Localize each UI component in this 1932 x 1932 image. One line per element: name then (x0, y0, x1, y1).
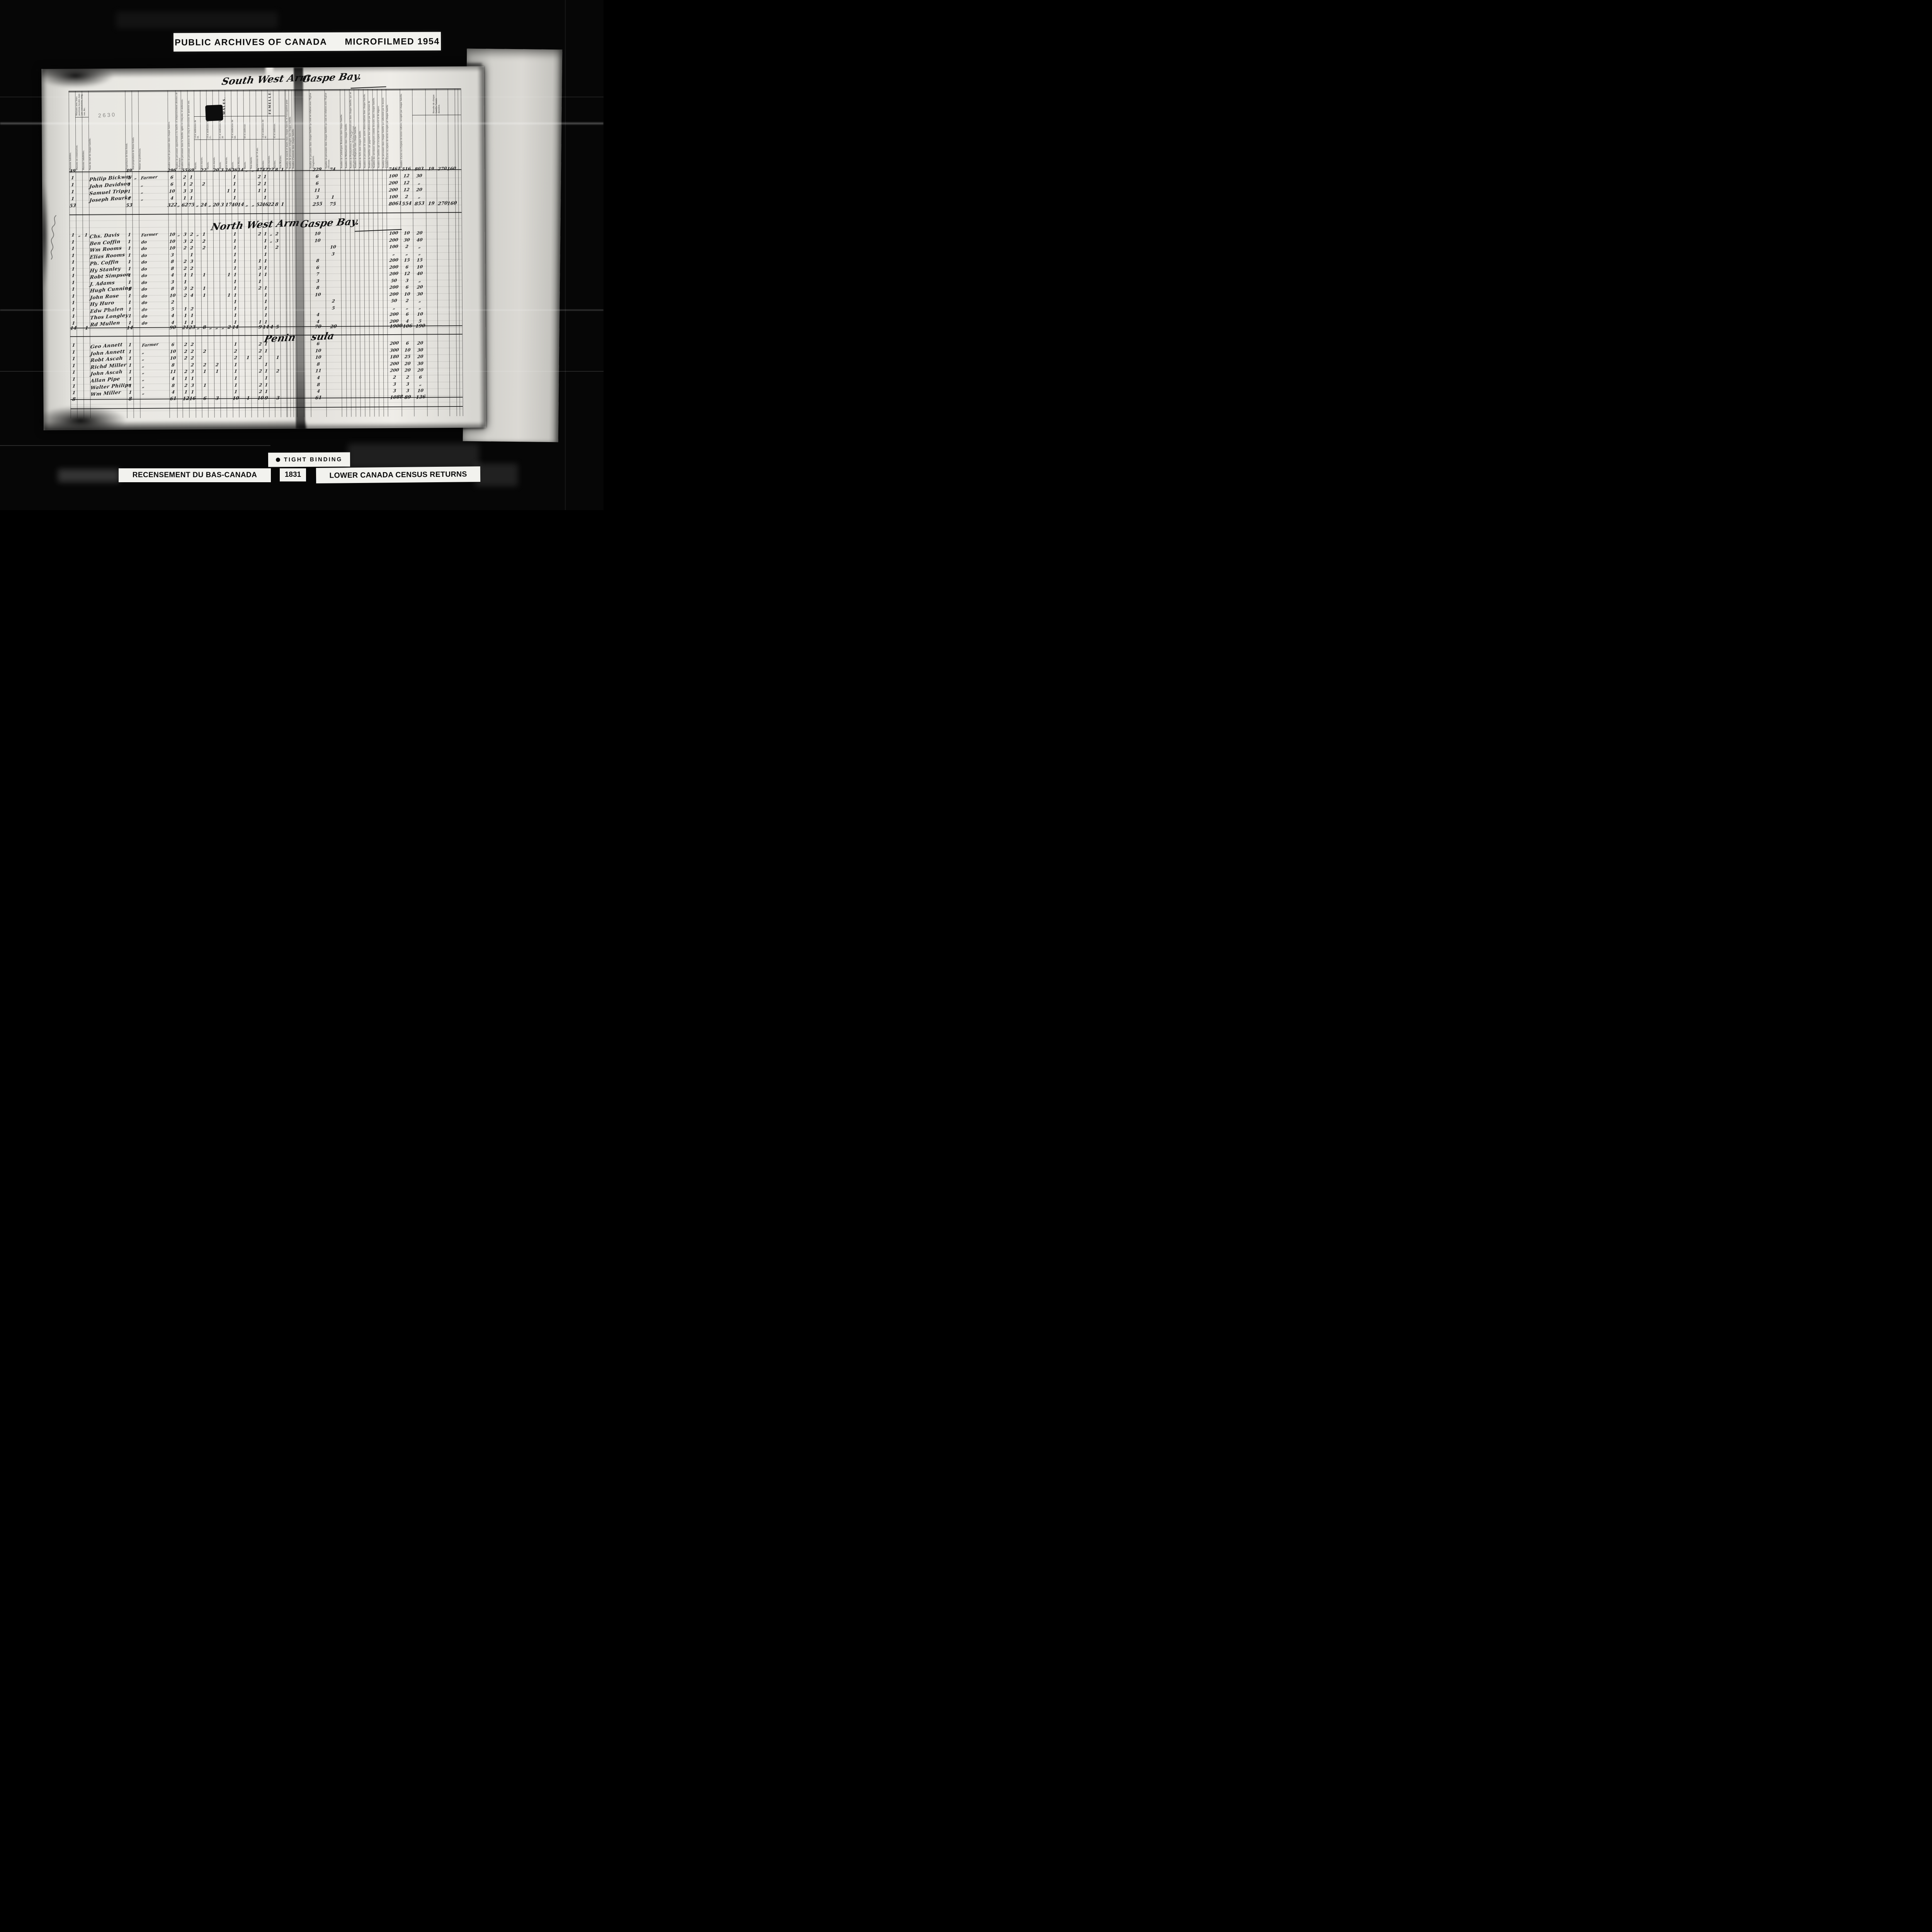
group-header: FEMELLES. (267, 92, 273, 114)
microfilm-frame: PUBLIC ARCHIVES OF CANADA MICROFILMED 19… (0, 0, 604, 510)
cell-bled: „ (414, 194, 424, 200)
marital-status-header: Mariés. (231, 140, 237, 169)
cell-hab: 1 (68, 246, 78, 252)
cell-f1445m: 1 (261, 389, 271, 395)
page-edge-shadow (299, 422, 484, 430)
cell-prop: 1 (125, 299, 135, 305)
cell-angl: 10 (313, 238, 323, 243)
cell-bled: 6 (415, 374, 425, 380)
cell-a05: 1 (180, 279, 190, 285)
cell-cult: 30 (402, 237, 412, 243)
cell-f1445m: 1 (261, 375, 271, 381)
cell-hab: 1 (69, 383, 79, 389)
cell-total: 90 (168, 325, 178, 331)
cell-ecosse: 10 (328, 244, 338, 250)
cell-m3060m: 2 (231, 355, 241, 361)
cell-f1445m: 1 (260, 245, 270, 250)
cell-a514: 3 (187, 259, 197, 264)
cell-a514: 1 (186, 195, 196, 201)
cell-bled: „ (415, 381, 425, 387)
column-header: Nombre de sourds et muets dans chaque fa… (286, 92, 289, 169)
cell-total: 4 (168, 376, 178, 382)
cell-m3060m: 1 (231, 389, 241, 395)
cell-angl: 8 (313, 285, 323, 291)
cell-bled: 10 (415, 264, 425, 270)
marital-status-header: Non-mariés. (225, 140, 231, 169)
cell-m1418n: 1 (200, 383, 210, 388)
cell-f1445m: 1 (261, 362, 271, 367)
cell-acres: „ (389, 251, 399, 257)
cell-hab: 14 (68, 325, 78, 331)
cell-angl: 4 (313, 375, 323, 381)
cell-ecosse: 1 (328, 194, 338, 200)
age-band-header: 60 et audessus (244, 117, 255, 138)
age-band-header: 45 et audessus. (274, 117, 284, 138)
cell-orge: 160 (447, 166, 457, 172)
cell-m3060m: 1 (230, 286, 240, 291)
cell-angl: 10 (313, 354, 323, 360)
cell-m3060m: 1 (231, 342, 241, 347)
cell-bled: 190 (415, 323, 425, 329)
marital-status-header: Non-Mariés. (238, 140, 243, 169)
cell-m3060m: 2 (231, 348, 241, 354)
cell-acres: 180 (389, 354, 400, 360)
cell-m3060m: 14 (230, 324, 240, 330)
cell-f1445m: 1 (260, 258, 270, 264)
column-header: Nombre de Juifs dans chaque famille. (359, 91, 363, 168)
cell-m3060m: 1 (231, 376, 241, 381)
column-header: Propriétaire de bien-fonds. (126, 92, 132, 170)
marital-status-header: Mariées. (262, 140, 267, 169)
cell-total: 10 (168, 355, 178, 361)
census-document: 2630 Maisons habitées.Nom du chef de cha… (41, 66, 486, 430)
tight-binding-label: TIGHT BINDING (268, 452, 350, 467)
cell-prop: 1 (125, 362, 135, 368)
bullet-icon (276, 457, 280, 462)
film-scratch (565, 0, 566, 510)
column-header: Nombre de personnes audessus de cinq et … (188, 92, 194, 169)
cell-total: 6 (167, 182, 177, 187)
cell-angl: 3 (312, 194, 322, 200)
section-heading-left: South West Arm (221, 71, 311, 87)
film-smudge (116, 12, 278, 29)
cell-angl: 6 (313, 265, 323, 270)
cell-f14: 2 (255, 355, 265, 361)
cell-m3060m: 1 (230, 259, 240, 264)
cell-cult: 89 (403, 394, 413, 400)
section-heading-right: Gaspe Bay. (299, 216, 361, 230)
cell-m60m: 1 (243, 355, 253, 361)
cell-f45m: 2 (272, 245, 282, 250)
cell-ecosse: 5 (328, 305, 338, 311)
cell-angl: 4 (313, 312, 323, 318)
cell-bled: 10 (415, 388, 425, 394)
cell-cult: 20 (403, 367, 413, 373)
cell-a514: 2 (187, 245, 197, 251)
page-number-stamp: 2630 (98, 111, 116, 119)
cell-hab: 1 (69, 376, 79, 382)
column-header: Maisons inhabitées. (82, 118, 88, 170)
cell-cult: 10 (403, 347, 413, 353)
column-header: Nombre d'insensés dans chaque famille. (292, 92, 295, 169)
cell-acres: 200 (388, 187, 398, 193)
cell-f1445m: 1 (260, 285, 270, 291)
cell-total: 11 (168, 369, 178, 375)
cell-f1445m: 1 (260, 195, 270, 201)
column-header: Nombre de Presbytériens et Congrégationa… (350, 91, 354, 168)
film-smudge (348, 444, 479, 469)
cell-m1821n: 2 (212, 362, 222, 368)
cell-hab: 1 (69, 363, 79, 369)
cell-m3060m: 1 (230, 174, 240, 180)
cell-hab: 1 (68, 293, 78, 299)
cell-m3060m: 1 (230, 279, 240, 284)
cell-angl: 10 (313, 231, 323, 236)
cell-prop: 1 (124, 279, 134, 285)
cell-cult: 2 (401, 194, 412, 200)
cell-m1418n: 1 (199, 272, 209, 278)
cell-m1418n: 2 (200, 349, 210, 354)
cell-m1418n: 1 (200, 369, 210, 374)
cell-total: 10 (167, 238, 177, 244)
cell-a514: 2 (187, 349, 197, 354)
cell-a514: 1 (186, 174, 196, 180)
row-ruled-line (71, 409, 463, 412)
marital-status-header: Non-mariés. (201, 140, 206, 169)
cell-f45m: 3 (272, 238, 282, 243)
column-header: Nombre de Methodistes dans chaque famill… (345, 91, 349, 168)
cell-hab: 1 (68, 273, 78, 279)
banner-text-left: PUBLIC ARCHIVES OF CANADA (175, 36, 327, 48)
cell-f1445m: 1 (260, 188, 270, 194)
cell-m3060m: 1 (230, 231, 240, 237)
cell-avoine: 270 (437, 200, 447, 206)
cell-a514: 2 (187, 362, 197, 368)
cell-ecosse: 3 (328, 251, 338, 257)
cell-prop: 1 (124, 182, 134, 187)
cell-prop: 1 (124, 189, 134, 194)
cell-prop: 1 (124, 239, 134, 245)
cell-angl: 10 (313, 292, 323, 298)
cell-acres: 8061 (388, 201, 398, 207)
cell-angl: 8 (313, 382, 323, 388)
cell-ecosse: 75 (328, 201, 338, 207)
cell-acres: 200 (389, 361, 400, 367)
age-band-header: 30 et audessous de 60. (231, 117, 243, 138)
cell-acres: 100 (388, 173, 398, 179)
cell-acres: 200 (389, 237, 399, 243)
column-header: Nombre de familles qui gagnent leur subs… (368, 91, 372, 168)
cell-prop: 1 (124, 245, 134, 251)
cell-f1445m: 1 (261, 306, 271, 311)
row-ruled-line (70, 402, 463, 405)
heading-flourish (350, 86, 386, 88)
cell-m1418n: 22 (199, 167, 209, 173)
cell-hab: 1 (68, 266, 78, 272)
cell-a514: 2 (187, 265, 197, 271)
page-edge-shadow (273, 63, 482, 73)
cell-total: 6 (167, 175, 177, 180)
cell-total: 4 (168, 389, 179, 395)
column-header: Nombre d'acres ou arpens de terres occup… (386, 91, 400, 168)
marital-status-header: Mariés. (207, 140, 212, 169)
cell-prop: 49 (124, 168, 134, 173)
cell-acres: 200 (389, 367, 400, 373)
cell-prop: 1 (124, 293, 134, 299)
cell-a514: 1 (187, 252, 197, 258)
cell-f1445m: 1 (260, 174, 270, 180)
column-header: Nombre de personnes dans la famille, agé… (181, 92, 187, 169)
margin-annotation-handwriting (44, 214, 63, 260)
cell-total: 296 (167, 168, 177, 173)
cell-acres: 200 (389, 264, 399, 270)
cell-acres: 200 (389, 291, 399, 297)
cell-total: 6 (168, 342, 178, 348)
cell-m1418n: 2 (199, 238, 209, 244)
cell-angl: 61 (314, 395, 324, 401)
cell-hab: 1 (68, 280, 78, 286)
cell-f1445m: 1 (261, 368, 271, 374)
cell-f45n: 1 (277, 167, 287, 173)
cell-acres: 3 (389, 388, 400, 394)
cell-total: 4 (168, 272, 178, 278)
column-header: Maisons habitées. (69, 93, 75, 170)
cell-a514: 2 (186, 181, 196, 187)
cell-prop: 1 (125, 355, 135, 361)
cell-acres: „ (389, 305, 399, 311)
cell-a514: 1 (187, 272, 197, 278)
cell-hab: 1 (68, 196, 78, 202)
cell-acres: 50 (389, 278, 399, 284)
cell-m1418n: 1 (199, 293, 209, 298)
cell-angl: 7 (313, 271, 323, 277)
cell-prop: 1 (125, 369, 135, 375)
cell-pois: 19 (426, 166, 436, 172)
cell-total: 4 (167, 196, 177, 201)
cell-angl: 3 (313, 278, 323, 284)
cell-hab: 1 (68, 175, 78, 181)
cell-bled: „ (415, 250, 425, 256)
cell-bled: „ (415, 298, 425, 304)
cell-acres: 200 (389, 271, 399, 277)
cell-cult: 6 (402, 284, 412, 290)
cell-hab: 1 (68, 286, 78, 292)
cell-prop: 1 (125, 376, 135, 382)
marital-status-header: Non-Mariées. (279, 140, 284, 169)
cell-prop: 8 (125, 396, 135, 402)
header-rule (75, 117, 88, 118)
cell-cult: „ (402, 250, 412, 256)
cell-angl: 4 (314, 388, 324, 394)
cell-m3060m: 1 (230, 272, 240, 278)
cell-prop: 1 (125, 306, 135, 312)
cell-acres: 50 (389, 298, 399, 304)
cell-total: 10 (167, 189, 177, 194)
cell-orge: 160 (447, 200, 457, 206)
marital-status-header: Mariées. (274, 140, 279, 169)
cell-cult: 6 (402, 264, 412, 270)
cell-ecosse: 2 (328, 298, 338, 304)
cell-total: 3 (167, 252, 177, 258)
cell-acres: 200 (389, 340, 400, 346)
cell-bled: 803 (414, 166, 424, 172)
cell-a514: 2 (187, 306, 197, 312)
tight-binding-text: TIGHT BINDING (284, 456, 343, 463)
recensement-label: RECENSEMENT DU BAS-CANADA (119, 468, 271, 482)
cell-f1445m: 1 (260, 292, 270, 298)
cell-bled: 20 (415, 230, 425, 236)
cell-bled: 30 (414, 173, 424, 179)
film-smudge (58, 469, 120, 482)
column-header: Nombre de personnes dans chaque famille … (325, 91, 340, 168)
cell-m1418n: 1 (199, 231, 209, 237)
cell-acres: 200 (389, 311, 399, 317)
cell-acres: 7461 (388, 166, 398, 172)
cell-hab: 1 (68, 189, 78, 195)
cell-f1445m: 1 (260, 252, 270, 257)
cell-f1445m: 1 (260, 265, 270, 271)
cell-bled: 853 (414, 201, 424, 207)
cell-bled: 20 (415, 340, 425, 346)
cell-cult: 12 (401, 180, 412, 186)
cell-bled: 30 (415, 347, 425, 353)
cell-m1418n: 1 (199, 286, 209, 291)
cell-a514: 1 (187, 313, 197, 318)
cell-cult: 20 (403, 361, 413, 367)
cell-a514: 1 (187, 376, 197, 381)
group-header: Maisons avec leurs positions locales dan… (76, 92, 88, 116)
cell-ecosse: 20 (328, 323, 338, 330)
cell-f45m: 2 (273, 368, 283, 374)
cell-a514: 3 (187, 383, 197, 388)
cell-acres: 200 (389, 284, 399, 290)
cell-total: 4 (168, 313, 178, 319)
cell-cult: 10 (402, 291, 412, 297)
cell-cult: 106 (402, 323, 412, 329)
cell-hab: 1 (68, 342, 78, 348)
cell-total: 8 (168, 265, 178, 271)
cell-f45n: 1 (277, 201, 287, 207)
section-total-rule (71, 406, 463, 409)
column-header: Nombre des serviteurs employés comme fer… (373, 91, 377, 168)
cell-f45m: 1 (272, 355, 282, 361)
cell-avoine: 270 (437, 166, 447, 172)
cell-f1445m: 1 (261, 312, 271, 318)
cell-cult: 2 (402, 244, 412, 250)
cell-m3060m: 1 (230, 292, 240, 298)
cell-cult: 12 (401, 173, 412, 179)
cell-hab: 1 (68, 259, 78, 265)
year-label: 1831 (280, 468, 306, 481)
cell-prop: 1 (124, 266, 134, 272)
cell-f45m: 5 (272, 324, 282, 330)
cell-hab: 1 (69, 370, 79, 376)
cell-m3060m: 1 (230, 188, 240, 194)
cell-prop: 1 (125, 383, 135, 389)
column-header: Non-propriétaire de biens-fonds. (132, 92, 138, 170)
cell-hab: 49 (68, 168, 78, 174)
cell-prop: 14 (125, 325, 135, 331)
cell-a514: 69 (186, 167, 196, 173)
cell-bled: 15 (415, 257, 425, 263)
lower-canada-label: LOWER CANADA CENSUS RETURNS (316, 466, 480, 483)
column-header: Métier ou profession. (139, 92, 162, 170)
cell-acres: 200 (389, 257, 399, 263)
cell-bled: 20 (415, 284, 425, 290)
cell-cult: 6 (402, 311, 412, 317)
cell-acres: 100 (389, 244, 399, 250)
cell-prop: 1 (124, 272, 134, 278)
cell-total: 10 (168, 349, 178, 354)
cell-angl: 6 (312, 173, 322, 179)
group-header: Récolte de chaque famille l'année derniè… (433, 90, 440, 113)
cell-hab: 1 (68, 239, 78, 245)
cell-bled: 20 (414, 187, 424, 193)
cell-bled: „ (415, 304, 425, 310)
cell-cult: „ (402, 304, 412, 310)
cell-prop: 1 (125, 389, 135, 395)
cell-hab: 1 (68, 356, 78, 362)
cell-prop: 1 (124, 196, 134, 201)
cell-f45m: 3 (273, 395, 283, 401)
film-scratch (0, 445, 270, 446)
cell-f1445m: 1 (260, 272, 270, 277)
cell-angl: 6 (312, 180, 322, 186)
cell-angl: 10 (313, 348, 323, 354)
cell-a514: 3 (187, 369, 197, 375)
cell-total: 5 (168, 306, 178, 312)
cell-prop: 1 (124, 286, 134, 292)
cell-total: 2 (168, 299, 178, 305)
cell-m1418n: 2 (199, 181, 209, 187)
cell-total: 8 (167, 259, 177, 265)
cell-f1445m: 1 (261, 348, 271, 354)
cell-bled: 40 (415, 237, 425, 243)
column-header: Nombre de personnes aveugles dans chaque… (289, 92, 292, 169)
cell-angl: 8 (313, 258, 323, 264)
cell-bled: „ (415, 277, 425, 283)
cell-a514: 2 (187, 355, 197, 361)
cell-acres: 100 (389, 230, 399, 236)
cell-angl: 229 (312, 167, 322, 172)
cell-cult: 2 (403, 374, 413, 380)
marital-status-header: Non-mariées. (268, 140, 273, 169)
marital-status-header: Mariés. (194, 140, 200, 169)
page-edge-shadow (37, 63, 114, 88)
cell-prop: 1 (124, 232, 134, 238)
cell-bled: „ (415, 244, 425, 250)
cell-angl: 11 (313, 368, 323, 374)
age-band-header: 14 et audessous de 18. (194, 117, 206, 139)
column-header: Nombre total de personnes dans chaque fa… (168, 92, 175, 169)
cell-total: 10 (168, 293, 178, 298)
cell-cult: 15 (402, 257, 412, 263)
cell-m3060m: 1 (230, 238, 240, 244)
cell-m1418n: 2 (199, 245, 209, 251)
cell-acres: 1900 (389, 323, 399, 329)
cell-hab: 8 (69, 396, 79, 402)
cell-bled: 136 (416, 394, 426, 400)
marital-status-header: Mariés. (219, 140, 224, 169)
cell-f1445m: 1 (261, 299, 271, 304)
cell-hab: 1 (68, 307, 78, 313)
cell-ecosse: 74 (328, 167, 338, 172)
cell-m3060m: 1 (230, 195, 240, 201)
cell-acres: 2 (389, 374, 400, 380)
banner-text-right: MICROFILMED 1954 (345, 36, 440, 47)
cell-bled: 30 (415, 361, 425, 366)
cell-a514: 16 (187, 395, 197, 401)
